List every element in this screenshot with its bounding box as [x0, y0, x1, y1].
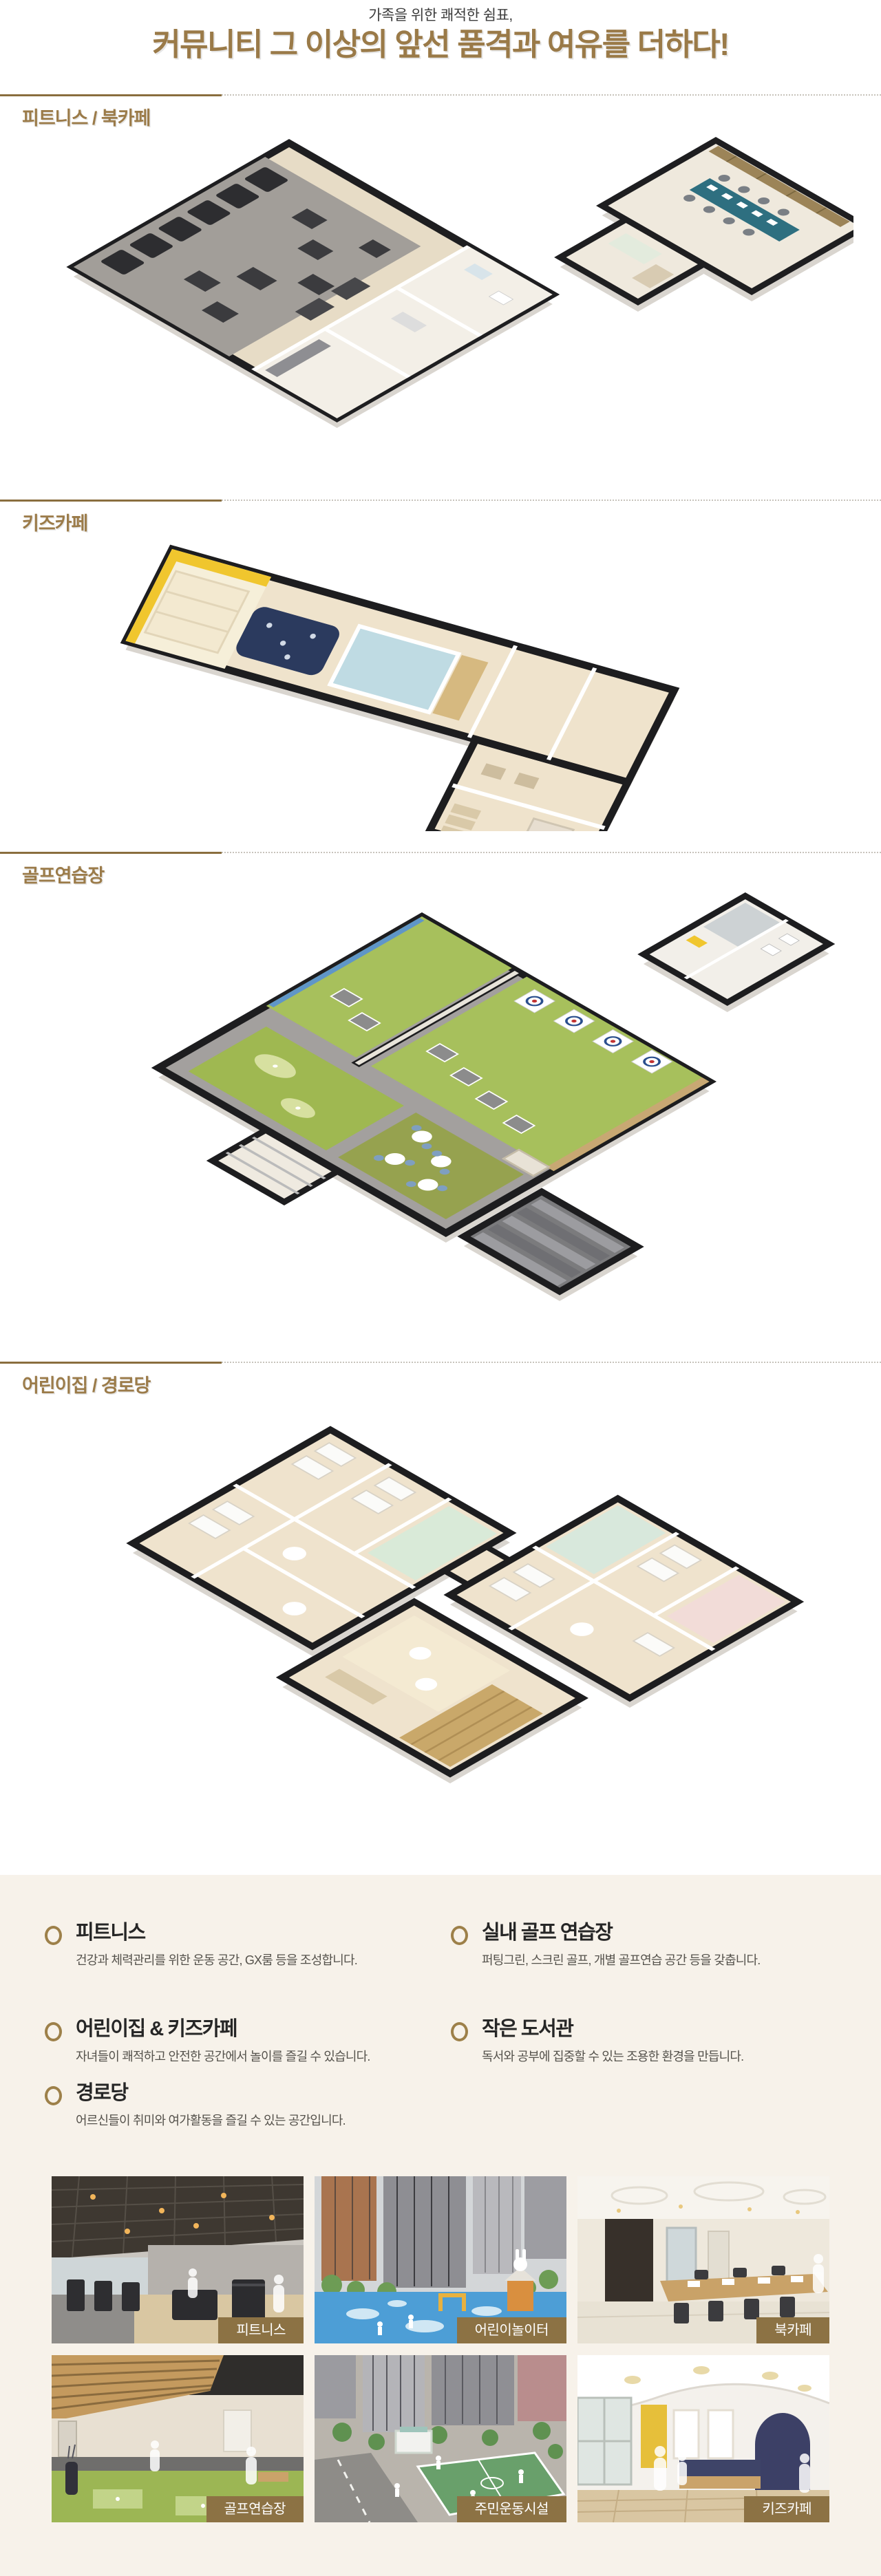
photo-fitness: 피트니스	[52, 2176, 304, 2343]
fitness-bookcafe-floorplan-render	[28, 131, 853, 475]
info-item-title: 어린이집 & 키즈카페	[76, 2018, 370, 2040]
info-item-daycare-kidscafe: 어린이집 & 키즈카페 자녀들이 쾌적하고 안전한 공간에서 놀이를 즐길 수 …	[45, 2018, 370, 2065]
section-title-fitness-bookcafe: 피트니스 / 북카페	[22, 103, 150, 130]
photo-golf-range: 골프연습장	[52, 2355, 304, 2522]
info-item-fitness: 피트니스 건강과 체력관리를 위한 운동 공간, GX룸 등을 조성합니다.	[45, 1922, 357, 1968]
info-item-title: 경로당	[76, 2082, 346, 2104]
info-item-desc: 어르신들이 취미와 여가활동을 즐길 수 있는 공간입니다.	[76, 2112, 346, 2129]
info-item-small-library: 작은 도서관 독서와 공부에 집중할 수 있는 조용한 환경을 만듭니다.	[451, 2018, 743, 2065]
photo-bookcafe: 북카페	[577, 2176, 829, 2343]
page-title: 커뮤니티 그 이상의 앞선 품격과 여유를 더하다!	[0, 19, 881, 64]
ring-bullet-icon	[451, 2022, 468, 2041]
photo-label: 북카페	[756, 2317, 829, 2343]
kidscafe-floorplan-render	[103, 535, 792, 831]
info-item-senior-center: 경로당 어르신들이 취미와 여가활동을 즐길 수 있는 공간입니다.	[45, 2082, 346, 2129]
golf-floorplan-render	[103, 889, 881, 1350]
info-item-desc: 자녀들이 쾌적하고 안전한 공간에서 놀이를 즐길 수 있습니다.	[76, 2048, 370, 2065]
info-item-desc: 독서와 공부에 집중할 수 있는 조용한 환경을 만듭니다.	[482, 2048, 743, 2065]
photo-label: 골프연습장	[206, 2496, 304, 2522]
photo-playground: 어린이놀이터	[315, 2176, 566, 2343]
photo-label: 어린이놀이터	[457, 2317, 566, 2343]
info-item-title: 작은 도서관	[482, 2018, 743, 2040]
section-title-daycare-senior: 어린이집 / 경로당	[22, 1371, 150, 1397]
ring-bullet-icon	[451, 1926, 468, 1945]
section-divider	[0, 94, 881, 96]
photo-outdoor-sports: 주민운동시설	[315, 2355, 566, 2522]
section-title-golf: 골프연습장	[22, 861, 104, 888]
section-divider	[0, 499, 881, 502]
photo-label: 주민운동시설	[457, 2496, 566, 2522]
info-item-title: 피트니스	[76, 1922, 357, 1944]
section-divider	[0, 1361, 881, 1364]
community-brochure-page: { "page": { "subtitle": "가족을 위한 쾌적한 쉼표,"…	[0, 0, 881, 2576]
info-item-indoor-golf: 실내 골프 연습장 퍼팅그린, 스크린 골프, 개별 골프연습 공간 등을 갖춥…	[451, 1922, 761, 1968]
photo-label: 피트니스	[218, 2317, 304, 2343]
ring-bullet-icon	[45, 1926, 62, 1945]
photo-label: 키즈카페	[744, 2496, 829, 2522]
info-item-title: 실내 골프 연습장	[482, 1922, 761, 1944]
ring-bullet-icon	[45, 2022, 62, 2041]
photo-kidscafe: 키즈카페	[577, 2355, 829, 2522]
info-item-desc: 건강과 체력관리를 위한 운동 공간, GX룸 등을 조성합니다.	[76, 1952, 357, 1968]
info-panel: 피트니스 건강과 체력관리를 위한 운동 공간, GX룸 등을 조성합니다. 어…	[0, 1875, 881, 2576]
daycare-seniorcenter-floorplan-render	[69, 1398, 812, 1852]
section-title-kidscafe: 키즈카페	[22, 508, 87, 535]
info-item-desc: 퍼팅그린, 스크린 골프, 개별 골프연습 공간 등을 갖춥니다.	[482, 1952, 761, 1968]
ring-bullet-icon	[45, 2086, 62, 2105]
section-divider	[0, 851, 881, 854]
